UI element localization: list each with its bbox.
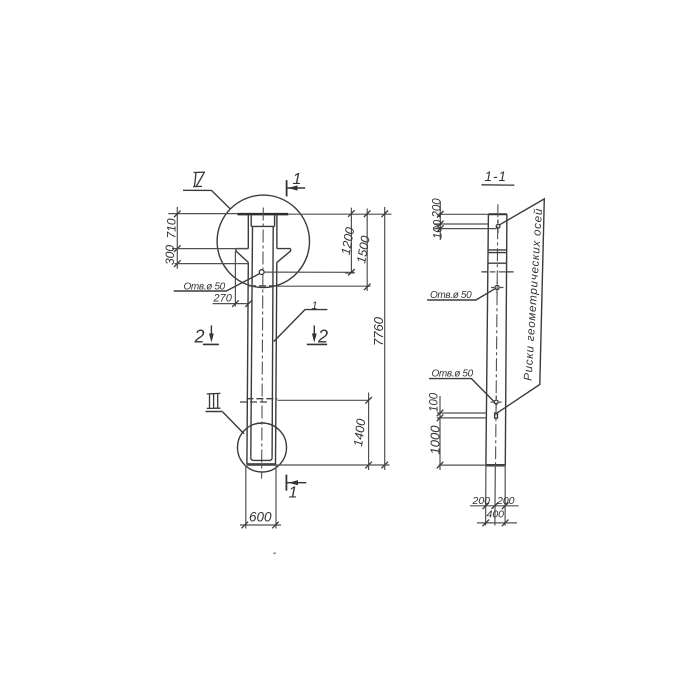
svg-text:2: 2 [194,327,205,347]
svg-text:7760: 7760 [371,316,386,346]
svg-text:1: 1 [293,171,302,188]
svg-text:270: 270 [213,293,233,305]
svg-text:300: 300 [163,245,177,265]
svg-text:1000: 1000 [428,425,443,455]
svg-text:710: 710 [165,218,179,238]
svg-text:100: 100 [433,219,445,239]
svg-text:2: 2 [317,327,328,347]
svg-text:200: 200 [432,198,444,219]
svg-text:Отв.ø 50: Отв.ø 50 [432,369,474,380]
svg-text:100: 100 [429,392,441,412]
svg-text:200: 200 [472,495,491,507]
svg-text:600: 600 [249,510,272,525]
svg-text:1: 1 [289,485,298,502]
svg-text:200: 200 [496,495,515,507]
svg-text:400: 400 [487,509,505,521]
svg-text:1: 1 [312,300,318,312]
svg-text:1-1: 1-1 [485,169,508,184]
